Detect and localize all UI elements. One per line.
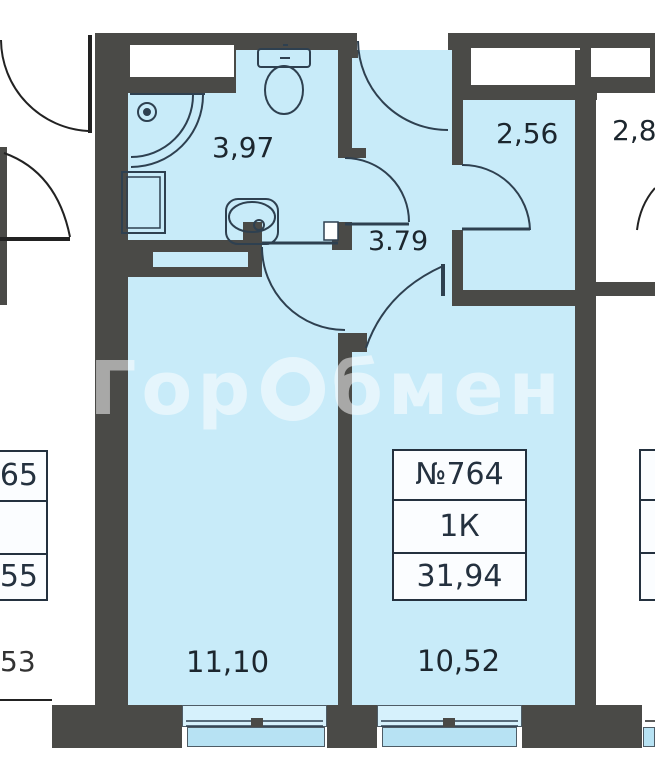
washing-machine-icon bbox=[122, 172, 165, 233]
label-kitchen-area: 10,52 bbox=[417, 644, 500, 678]
apartment-info-box: №764 1К 31,94 bbox=[392, 449, 527, 601]
window-glazing-living bbox=[186, 718, 323, 727]
label-living-area: 11,10 bbox=[186, 645, 269, 679]
door-arc-living bbox=[262, 243, 345, 330]
watermark-logo-ring-icon bbox=[261, 357, 325, 421]
door-arc-entrance bbox=[358, 41, 448, 130]
shower-icon bbox=[130, 94, 205, 167]
floor-plan: №764 1К 31,94 65 55 3,97 3.79 2,56 11,10… bbox=[0, 0, 655, 768]
label-neighbor-right-area: 2,8 bbox=[612, 114, 655, 147]
toilet-icon bbox=[258, 45, 310, 114]
label-neighbor-left-area: 53 bbox=[0, 645, 36, 678]
door-arc-neighbor-right bbox=[637, 188, 655, 230]
watermark: Горбмен bbox=[62, 346, 592, 432]
label-wardrobe-area: 2,56 bbox=[496, 117, 558, 150]
door-arc-neighbor-left-2 bbox=[0, 153, 70, 239]
door-arc-neighbor-left-1 bbox=[1, 35, 90, 133]
bathroom-duct-notch bbox=[324, 222, 338, 240]
apartment-number: №764 bbox=[394, 451, 525, 501]
label-hallway-area: 3.79 bbox=[368, 226, 428, 257]
label-bathroom-area: 3,97 bbox=[212, 131, 274, 164]
neighbor-left-area: 55 bbox=[0, 555, 46, 599]
door-arc-wardrobe bbox=[462, 165, 530, 230]
window-neighbor-lines bbox=[0, 700, 655, 721]
sink-icon bbox=[226, 199, 278, 244]
apartment-type: 1К bbox=[394, 501, 525, 554]
watermark-part2: бмен bbox=[331, 346, 564, 432]
neighbor-left-number: 65 bbox=[0, 452, 46, 502]
apartment-total-area: 31,94 bbox=[394, 554, 525, 599]
neighbor-left-type bbox=[0, 502, 46, 555]
watermark-part1: Гор bbox=[89, 346, 255, 432]
door-arc-bathroom bbox=[345, 158, 409, 224]
neighbor-right-info-box bbox=[639, 449, 655, 601]
window-glazing-kitchen bbox=[381, 718, 518, 727]
door-arc-kitchen bbox=[366, 264, 443, 348]
neighbor-left-info-box: 65 55 bbox=[0, 450, 48, 601]
